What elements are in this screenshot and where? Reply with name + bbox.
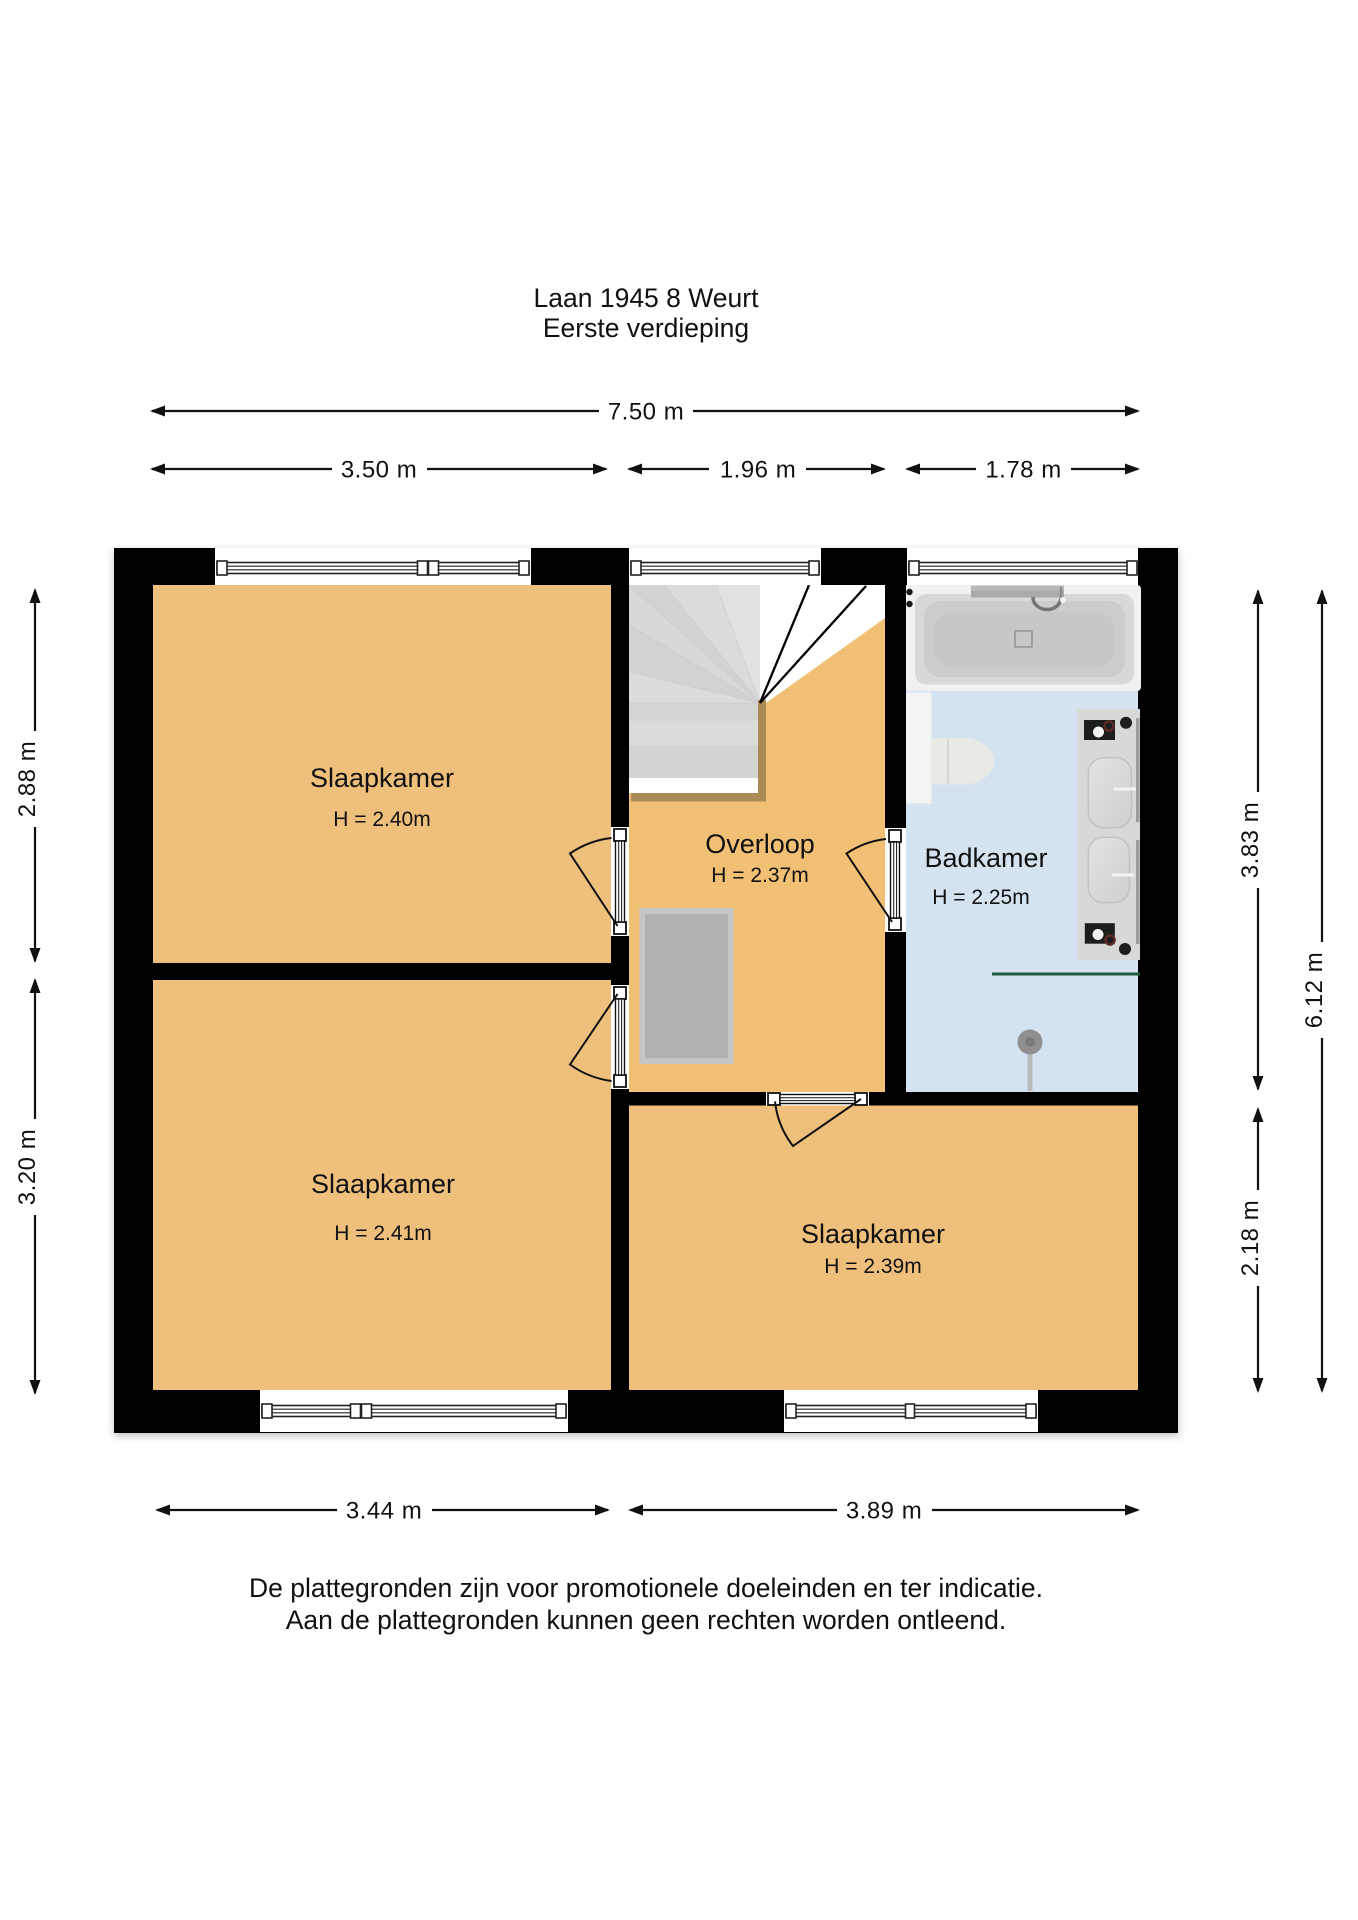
svg-text:Overloop: Overloop (705, 829, 815, 859)
svg-text:1.96 m: 1.96 m (720, 457, 796, 484)
svg-text:3.50 m: 3.50 m (341, 457, 417, 484)
svg-text:2.18 m: 2.18 m (1237, 1200, 1264, 1276)
svg-text:H = 2.39m: H = 2.39m (824, 1255, 921, 1278)
svg-text:Eerste verdieping: Eerste verdieping (543, 313, 749, 343)
svg-text:3.89 m: 3.89 m (846, 1498, 922, 1525)
svg-text:3.20 m: 3.20 m (14, 1129, 41, 1205)
svg-text:6.12 m: 6.12 m (1301, 952, 1328, 1028)
svg-text:Aan de plattegronden kunnen ge: Aan de plattegronden kunnen geen rechten… (286, 1605, 1006, 1635)
svg-text:Badkamer: Badkamer (924, 843, 1047, 873)
svg-text:H = 2.25m: H = 2.25m (932, 886, 1029, 909)
svg-text:H = 2.41m: H = 2.41m (334, 1222, 431, 1245)
svg-text:1.78 m: 1.78 m (985, 457, 1061, 484)
svg-text:7.50 m: 7.50 m (608, 399, 684, 426)
svg-text:Slaapkamer: Slaapkamer (311, 1169, 455, 1199)
svg-text:Slaapkamer: Slaapkamer (801, 1219, 945, 1249)
svg-text:De plattegronden zijn voor pro: De plattegronden zijn voor promotionele … (249, 1573, 1043, 1603)
svg-text:H = 2.37m: H = 2.37m (711, 864, 808, 887)
svg-text:3.44 m: 3.44 m (346, 1498, 422, 1525)
svg-text:H = 2.40m: H = 2.40m (333, 808, 430, 831)
svg-text:Laan 1945 8 Weurt: Laan 1945 8 Weurt (534, 283, 760, 313)
svg-text:3.83 m: 3.83 m (1237, 802, 1264, 878)
svg-text:2.88 m: 2.88 m (14, 741, 41, 817)
svg-text:Slaapkamer: Slaapkamer (310, 763, 454, 793)
